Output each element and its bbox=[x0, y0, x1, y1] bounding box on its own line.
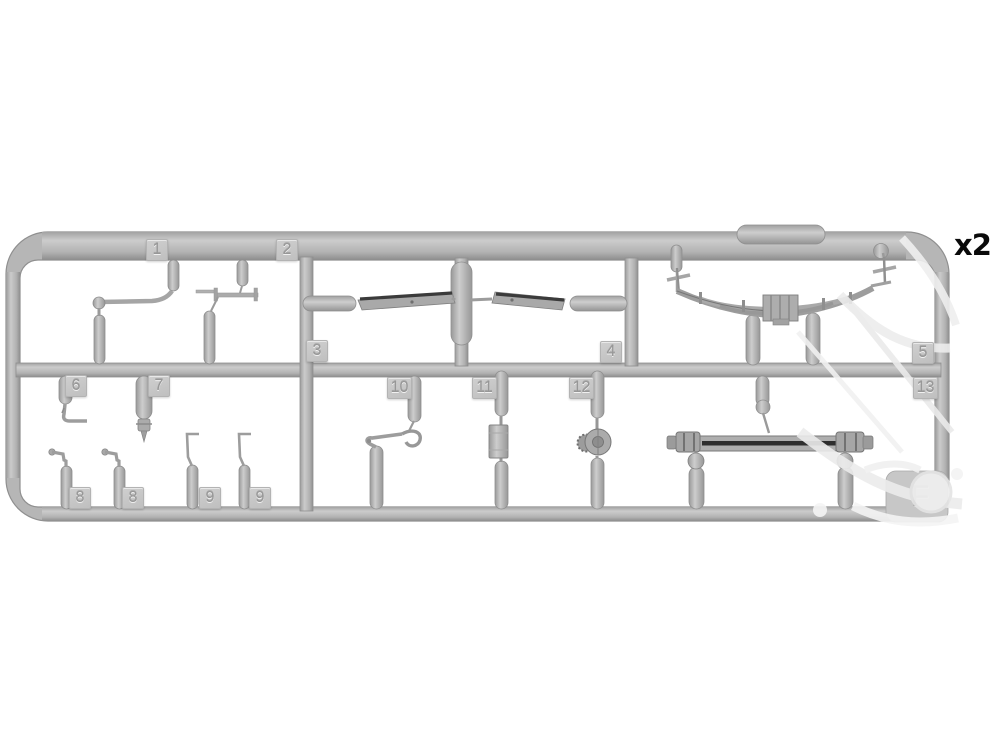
part-4-blade bbox=[470, 292, 565, 310]
sprue-frame bbox=[6, 225, 949, 521]
part-tag-8a: 8 bbox=[69, 487, 91, 509]
part-tag-4: 4 bbox=[600, 341, 622, 363]
part-tag-10: 10 bbox=[387, 377, 412, 399]
part-11-block bbox=[489, 416, 508, 462]
part-tag-5: 5 bbox=[912, 342, 934, 364]
part-9-rod-b bbox=[239, 434, 251, 466]
part-tag-1: 1 bbox=[146, 239, 168, 261]
part-2-tie-rod bbox=[196, 286, 258, 311]
part-tag-13: 13 bbox=[913, 377, 938, 399]
part-tag-9a: 9 bbox=[199, 487, 221, 509]
product-photo-stage: F F 1 2 3 4 5 6 7 8 8 9 9 10 11 12 13 x2 bbox=[0, 0, 1000, 750]
part-tag-3: 3 bbox=[306, 340, 328, 362]
part-tag-7: 7 bbox=[148, 375, 170, 397]
part-1-ball-lever bbox=[93, 291, 172, 316]
part-tag-9b: 9 bbox=[249, 487, 271, 509]
part-tag-6: 6 bbox=[65, 375, 87, 397]
part-tag-12: 12 bbox=[569, 377, 594, 399]
part-3-blade bbox=[358, 292, 455, 310]
part-tag-8b: 8 bbox=[122, 487, 144, 509]
part-10-tow-hook bbox=[367, 421, 420, 447]
quantity-label: x2 bbox=[954, 228, 991, 262]
part-7-fitting bbox=[136, 419, 152, 442]
part-8-crank-b bbox=[102, 449, 119, 467]
part-tag-11: 11 bbox=[472, 377, 497, 399]
part-9-rod-a bbox=[187, 434, 199, 466]
part-tag-2: 2 bbox=[276, 239, 298, 261]
part-12-gear-hub bbox=[578, 418, 612, 458]
part-8-crank-a bbox=[49, 449, 66, 467]
part-6-bracket bbox=[62, 404, 87, 421]
